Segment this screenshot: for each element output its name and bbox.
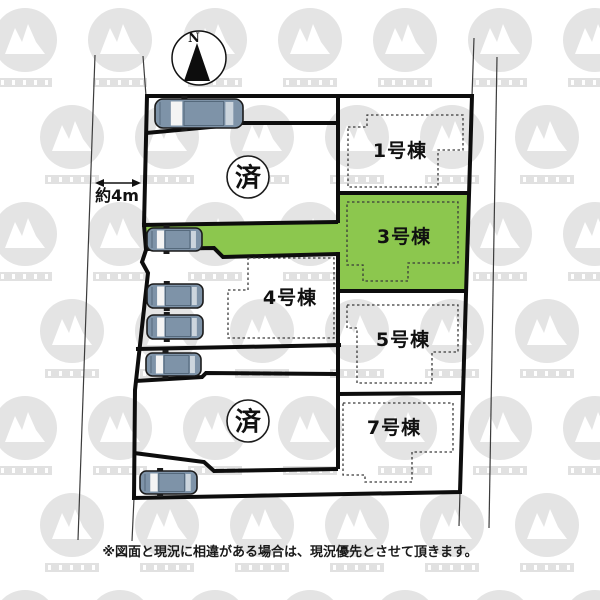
road-edge-left-inner-top xyxy=(143,56,146,96)
watermark-tile xyxy=(468,202,532,281)
watermark-tile xyxy=(563,8,600,87)
watermark-tile xyxy=(420,105,484,184)
watermark-tile xyxy=(0,590,57,600)
lot-1-label: 1号棟 xyxy=(373,139,427,162)
watermark-tile xyxy=(515,105,579,184)
car-icon xyxy=(140,468,197,497)
road-width-measure: 約4m xyxy=(95,179,141,205)
site-plan-canvas: 済 済 N 約4m 1号棟 3号棟 4号棟 5号棟 7号棟 ※図面と現況に相違が… xyxy=(0,0,600,600)
watermark-tile xyxy=(0,8,57,87)
watermark-tile xyxy=(230,493,294,572)
watermark-tile xyxy=(0,202,57,281)
sold-badge-label: 済 xyxy=(235,406,262,437)
watermark-tile xyxy=(278,8,342,87)
watermark-tile xyxy=(563,396,600,475)
car-icon xyxy=(147,281,203,311)
watermark-tile xyxy=(563,202,600,281)
watermark-tile xyxy=(40,299,104,378)
watermark-tile xyxy=(515,493,579,572)
watermark-tile xyxy=(0,396,57,475)
compass-north-label: N xyxy=(188,31,200,46)
road-width-label: 約4m xyxy=(95,186,139,205)
car-icon xyxy=(155,96,243,131)
lot-5-label: 5号棟 xyxy=(376,328,430,351)
site-plan-page: 済 済 N 約4m 1号棟 3号棟 4号棟 5号棟 7号棟 ※図面と現況に相違が… xyxy=(0,0,600,600)
watermark-tile xyxy=(88,8,152,87)
watermark-tile xyxy=(563,590,600,600)
disclaimer-text: ※図面と現況に相違がある場合は、現況優先とさせて頂きます。 xyxy=(102,544,477,560)
lot-5-bottom-line xyxy=(338,393,463,394)
lot-7-label: 7号棟 xyxy=(367,416,421,439)
watermark-tile xyxy=(183,590,247,600)
car-icon xyxy=(147,312,203,342)
sold-badge: 済 xyxy=(227,156,269,198)
lot-3-label: 3号棟 xyxy=(377,225,431,248)
watermark-tile xyxy=(135,493,199,572)
car-icon xyxy=(146,350,201,379)
watermark-tile xyxy=(88,590,152,600)
watermark-tile xyxy=(278,396,342,475)
watermark-tile xyxy=(373,590,437,600)
sold-badge-label: 済 xyxy=(235,162,262,193)
road-edge-left-inner-bottom xyxy=(132,498,134,541)
watermark-tile xyxy=(40,105,104,184)
watermark-tile xyxy=(325,493,389,572)
lot-4-label: 4号棟 xyxy=(263,286,317,309)
watermark-tile xyxy=(468,590,532,600)
car-icon xyxy=(147,225,202,254)
watermark-tile xyxy=(515,299,579,378)
watermark-tile xyxy=(468,396,532,475)
sold-badge: 済 xyxy=(227,400,269,442)
watermark-tile xyxy=(373,8,437,87)
watermark-tile xyxy=(40,493,104,572)
north-compass: N xyxy=(172,31,226,85)
watermark-tile xyxy=(278,590,342,600)
watermark-tile xyxy=(468,8,532,87)
watermark-tile xyxy=(88,396,152,475)
watermark-tile xyxy=(420,493,484,572)
